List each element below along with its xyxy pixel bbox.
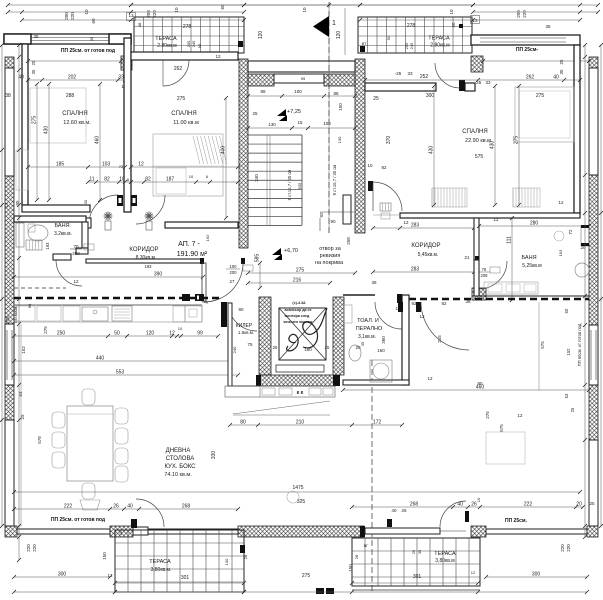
svg-text:130: 130 (268, 122, 276, 127)
svg-text:185: 185 (56, 162, 65, 168)
svg-text:25: 25 (570, 407, 575, 412)
svg-text:25: 25 (273, 345, 278, 350)
svg-text:12: 12 (427, 376, 433, 381)
svg-text:88: 88 (260, 89, 266, 94)
svg-text:100: 100 (323, 121, 331, 126)
svg-text:БАНЯ: БАНЯ (521, 255, 536, 261)
svg-text:280: 280 (530, 221, 539, 227)
svg-text:63: 63 (564, 393, 569, 398)
svg-text:12: 12 (107, 573, 113, 578)
svg-text:(с)-4.3А: (с)-4.3А (292, 301, 306, 305)
svg-text:300: 300 (58, 572, 67, 578)
svg-text:252: 252 (420, 74, 429, 80)
svg-text:99: 99 (197, 331, 203, 337)
svg-text:-25: -25 (395, 71, 402, 76)
svg-text:26: 26 (401, 508, 407, 513)
svg-text:275: 275 (485, 411, 490, 419)
svg-text:33: 33 (407, 71, 413, 76)
svg-text:535: 535 (297, 182, 302, 189)
svg-text:25: 25 (252, 111, 258, 116)
svg-text:72: 72 (119, 164, 124, 169)
svg-text:430: 430 (429, 146, 435, 155)
svg-text:40: 40 (391, 508, 397, 513)
svg-text:асансьор да се: асансьор да се (284, 308, 311, 312)
svg-text:430: 430 (44, 126, 50, 135)
svg-text:5,45кв.м.: 5,45кв.м. (418, 252, 439, 258)
svg-text:СПАЛНЯ: СПАЛНЯ (171, 111, 196, 117)
svg-text:ПП 25см. от готов под: ПП 25см. от готов под (61, 48, 116, 54)
svg-text:240: 240 (232, 346, 237, 353)
svg-text:193: 193 (558, 249, 563, 256)
svg-text:400: 400 (221, 146, 227, 155)
svg-text:38: 38 (5, 93, 11, 99)
svg-text:38: 38 (371, 280, 377, 285)
svg-text:172: 172 (373, 420, 382, 426)
svg-text:17: 17 (4, 202, 9, 208)
svg-text:301: 301 (413, 574, 422, 580)
svg-text:35: 35 (559, 69, 564, 75)
svg-text:35: 35 (545, 24, 551, 29)
svg-text:300: 300 (532, 572, 541, 578)
svg-text:35: 35 (89, 36, 94, 41)
svg-text:216: 216 (293, 278, 302, 284)
svg-text:12: 12 (419, 314, 425, 319)
svg-text:76: 76 (482, 267, 487, 272)
svg-text:11: 11 (89, 177, 94, 183)
svg-text:25: 25 (325, 345, 330, 350)
svg-text:21: 21 (464, 255, 470, 260)
svg-text:100: 100 (294, 89, 302, 94)
svg-text:88: 88 (333, 91, 339, 96)
svg-text:240: 240 (254, 174, 259, 182)
svg-text:ПП 25см. от готов под: ПП 25см. от готов под (51, 517, 106, 523)
svg-text:ВТ: ВТ (362, 41, 367, 46)
svg-text:10: 10 (302, 7, 307, 13)
svg-text:575: 575 (499, 424, 504, 432)
svg-text:275: 275 (177, 96, 186, 102)
svg-text:-25: -25 (475, 80, 482, 85)
svg-text:9 ст.16,7 / 30 см: 9 ст.16,7 / 30 см (332, 165, 337, 196)
svg-text:150: 150 (338, 103, 343, 111)
svg-text:150: 150 (102, 552, 107, 560)
svg-text:300: 300 (426, 93, 435, 99)
svg-text:38: 38 (465, 299, 471, 304)
svg-text:370: 370 (386, 136, 392, 145)
svg-text:СПАЛНЯ: СПАЛНЯ (62, 111, 87, 117)
svg-text:262: 262 (526, 75, 535, 81)
svg-text:50: 50 (114, 331, 120, 337)
svg-text:10: 10 (367, 163, 373, 168)
svg-text:35: 35 (31, 69, 36, 74)
svg-text:440: 440 (96, 356, 105, 362)
svg-text:191.90 м²: 191.90 м² (177, 251, 208, 258)
svg-text:288: 288 (66, 93, 75, 99)
svg-text:82: 82 (104, 177, 110, 183)
svg-text:1: 1 (332, 20, 336, 27)
svg-text:К К: К К (297, 390, 304, 395)
svg-text:74.10 кв.м.: 74.10 кв.м. (164, 472, 192, 478)
svg-text:578: 578 (37, 436, 42, 444)
svg-text:111: 111 (507, 236, 513, 244)
svg-text:70: 70 (73, 244, 79, 249)
svg-text:+6,70: +6,70 (284, 248, 298, 254)
svg-text:160: 160 (377, 348, 385, 353)
svg-text:КОРИДОР: КОРИДОР (411, 243, 440, 249)
svg-text:208: 208 (146, 10, 151, 18)
svg-text:575: 575 (540, 341, 545, 349)
svg-text:95: 95 (197, 43, 202, 48)
svg-text:12: 12 (558, 200, 564, 205)
svg-text:ПП 25см-: ПП 25см- (516, 47, 539, 53)
svg-text:275: 275 (296, 268, 305, 274)
svg-text:275: 275 (536, 93, 545, 99)
svg-text:130: 130 (224, 558, 229, 565)
svg-text:9 ст.16,7 / 30 см: 9 ст.16,7 / 30 см (287, 170, 292, 201)
svg-text:под: под (202, 300, 208, 304)
svg-text:35: 35 (418, 550, 422, 554)
svg-text:5,25кв.м: 5,25кв.м (522, 263, 542, 269)
svg-text:монтира след: монтира след (285, 314, 310, 318)
svg-text:28: 28 (354, 554, 359, 559)
svg-text:ТЕРАСА: ТЕРАСА (428, 36, 450, 42)
svg-text:10: 10 (174, 7, 179, 13)
svg-text:275: 275 (32, 116, 38, 125)
svg-text:92: 92 (319, 212, 324, 218)
svg-text:10: 10 (178, 326, 183, 331)
svg-text:82: 82 (145, 177, 151, 183)
svg-text:25: 25 (373, 96, 379, 102)
svg-text:200: 200 (516, 10, 521, 18)
svg-text:12: 12 (215, 54, 221, 59)
svg-text:200: 200 (72, 251, 80, 256)
svg-text:330: 330 (211, 451, 217, 460)
svg-text:35: 35 (360, 341, 365, 346)
svg-text:275: 275 (302, 573, 311, 579)
svg-text:22: 22 (118, 530, 123, 535)
svg-text:120: 120 (146, 331, 155, 337)
svg-text:КИЛЕР: КИЛЕР (236, 323, 253, 329)
svg-text:120: 120 (258, 31, 264, 40)
svg-text:193: 193 (45, 242, 50, 250)
svg-text:258: 258 (346, 237, 351, 245)
svg-text:202: 202 (68, 75, 77, 81)
svg-text:278: 278 (407, 23, 416, 29)
svg-text:60: 60 (27, 303, 32, 308)
svg-text:220: 220 (560, 544, 565, 552)
svg-text:27: 27 (229, 279, 235, 284)
svg-text:35: 35 (33, 34, 39, 39)
svg-text:22.90 кв.м: 22.90 кв.м (465, 138, 491, 144)
svg-text:220: 220 (70, 12, 75, 20)
svg-text:3,1кв.м.: 3,1кв.м. (358, 334, 376, 340)
svg-text:220: 220 (566, 544, 571, 552)
svg-text:25: 25 (412, 550, 416, 554)
svg-text:3,80кв.м: 3,80кв.м (435, 558, 455, 564)
svg-text:10: 10 (119, 177, 125, 183)
svg-text:ПЕРАЛНО: ПЕРАЛНО (356, 326, 383, 332)
svg-text:12: 12 (471, 570, 476, 575)
svg-text:28: 28 (243, 554, 248, 559)
svg-text:162: 162 (205, 234, 210, 241)
svg-text:1475: 1475 (292, 485, 303, 491)
svg-text:75: 75 (247, 342, 253, 347)
svg-text:ТЕРАСА: ТЕРАСА (149, 559, 171, 565)
svg-text:220: 220 (26, 544, 31, 552)
svg-text:220: 220 (152, 10, 157, 18)
svg-text:283: 283 (411, 267, 420, 273)
svg-text:3,80кв.м.: 3,80кв.м. (151, 567, 172, 573)
svg-text:3.2кв.м.: 3.2кв.м. (54, 231, 72, 237)
svg-text:10: 10 (476, 497, 481, 502)
svg-text:283: 283 (411, 223, 420, 229)
svg-text:103: 103 (102, 162, 111, 168)
svg-text:12: 12 (138, 162, 144, 168)
svg-text:152: 152 (566, 348, 571, 356)
svg-text:95: 95 (301, 76, 306, 81)
svg-text:80: 80 (240, 420, 246, 426)
svg-text:262: 262 (174, 66, 183, 72)
svg-text:150: 150 (348, 564, 353, 572)
svg-text:245: 245 (191, 40, 196, 47)
svg-text:ТЕРАСА: ТЕРАСА (434, 551, 456, 557)
svg-text:301: 301 (181, 575, 190, 581)
svg-text:КУХ. БОКС: КУХ. БОКС (164, 464, 196, 470)
svg-text:ВГ: ВГ (364, 543, 370, 548)
svg-text:ПП 60см. от готов под: ПП 60см. от готов под (577, 323, 582, 366)
svg-text:222: 222 (524, 502, 533, 508)
svg-text:278: 278 (183, 24, 192, 30)
svg-text:82: 82 (441, 301, 447, 306)
svg-text:20: 20 (576, 502, 582, 508)
svg-text:ПП 25см.: ПП 25см. (505, 518, 528, 524)
svg-text:220: 220 (32, 544, 37, 552)
svg-text:10: 10 (189, 174, 194, 179)
svg-text:220: 220 (522, 10, 527, 18)
svg-text:СТОЛОВА: СТОЛОВА (166, 456, 195, 462)
svg-text:15: 15 (297, 120, 303, 125)
svg-text:АП. 7 -: АП. 7 - (178, 241, 200, 248)
svg-text:553: 553 (116, 370, 125, 376)
svg-text:278: 278 (5, 316, 10, 324)
svg-text:575: 575 (475, 154, 484, 160)
svg-text:82: 82 (381, 165, 387, 170)
svg-text:10: 10 (449, 9, 454, 15)
svg-text:130: 130 (337, 136, 342, 143)
svg-text:25: 25 (589, 501, 595, 506)
svg-text:отвор за: отвор за (319, 246, 341, 252)
svg-text:275: 275 (514, 136, 520, 145)
svg-text:+7,25: +7,25 (287, 109, 301, 115)
svg-text:13: 13 (472, 18, 478, 23)
svg-text:33: 33 (485, 80, 491, 85)
svg-text:33: 33 (118, 75, 124, 81)
svg-text:120: 120 (336, 31, 342, 40)
svg-text:268: 268 (410, 502, 419, 508)
svg-text:187: 187 (166, 177, 175, 183)
svg-text:25: 25 (559, 59, 564, 65)
svg-text:12: 12 (403, 220, 409, 225)
svg-text:БАНЯ: БАНЯ (54, 223, 69, 229)
svg-text:245: 245 (409, 42, 414, 49)
svg-text:ПП 60см: ПП 60см (13, 306, 18, 323)
svg-text:СПАЛНЯ: СПАЛНЯ (462, 129, 487, 135)
svg-text:60: 60 (91, 18, 96, 24)
svg-text:2.80кв.м: 2.80кв.м (430, 43, 450, 49)
svg-text:72: 72 (568, 229, 573, 235)
svg-text:12: 12 (169, 331, 175, 337)
svg-text:12: 12 (517, 413, 523, 418)
svg-text:2.80кв.м: 2.80кв.м (157, 43, 177, 49)
svg-text:ДНЕВНА: ДНЕВНА (166, 448, 191, 454)
svg-text:КОРИДОР: КОРИДОР (129, 247, 158, 253)
svg-text:183: 183 (145, 264, 153, 269)
svg-text:на покрива: на покрива (315, 260, 344, 266)
svg-text:ТЕРАСА: ТЕРАСА (155, 36, 177, 42)
svg-text:152: 152 (21, 346, 26, 354)
svg-text:30: 30 (83, 199, 88, 204)
svg-text:1.8кв.м.: 1.8кв.м. (238, 330, 254, 335)
svg-text:12: 12 (73, 279, 79, 284)
svg-text:40: 40 (127, 504, 133, 510)
svg-text:48: 48 (137, 22, 142, 27)
svg-text:268: 268 (182, 504, 191, 510)
svg-text:80: 80 (477, 381, 483, 386)
svg-text:430: 430 (490, 141, 496, 150)
svg-text:360: 360 (381, 336, 386, 344)
svg-text:12: 12 (493, 217, 499, 222)
svg-text:100: 100 (230, 264, 238, 269)
svg-text:26: 26 (113, 504, 119, 510)
svg-text:200: 200 (64, 12, 69, 20)
svg-text:ТОАЛ. И: ТОАЛ. И (357, 318, 379, 324)
svg-text:90: 90 (238, 307, 244, 312)
svg-text:215: 215 (437, 335, 442, 343)
svg-text:25: 25 (31, 60, 36, 65)
svg-text:275: 275 (43, 326, 48, 334)
svg-text:90: 90 (330, 219, 336, 224)
svg-text:460: 460 (95, 136, 101, 145)
svg-text:250: 250 (57, 331, 66, 337)
svg-text:210: 210 (296, 420, 305, 426)
svg-text:12.60 кв.м.: 12.60 кв.м. (63, 120, 91, 126)
svg-text:390: 390 (154, 272, 163, 278)
svg-text:222: 222 (64, 504, 73, 510)
svg-text:ревизия: ревизия (320, 253, 341, 259)
svg-text:585: 585 (255, 254, 261, 263)
svg-text:208: 208 (481, 273, 489, 278)
svg-text:200: 200 (230, 270, 238, 275)
svg-text:11.00 кв.м: 11.00 кв.м (173, 120, 199, 126)
svg-text:90: 90 (386, 35, 391, 40)
svg-text:60: 60 (564, 308, 569, 313)
